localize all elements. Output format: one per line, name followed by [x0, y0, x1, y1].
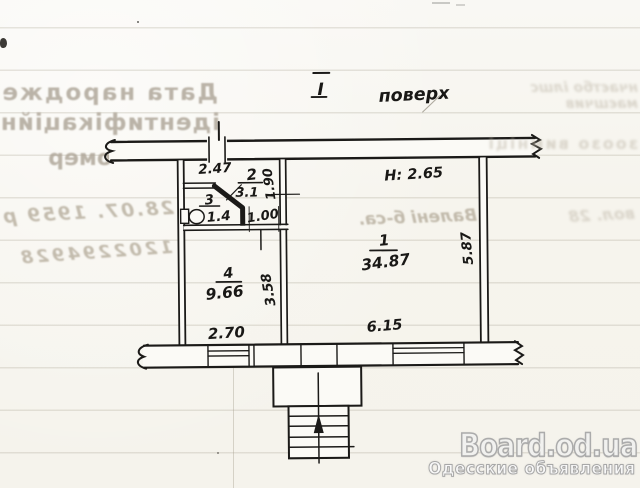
room3-number: 3	[204, 192, 215, 209]
toilet-icon	[181, 209, 205, 224]
watermark-tagline: Одесские объявления	[428, 459, 635, 478]
bleed-scribble-row-1: нчаєтбо ілшс	[520, 80, 638, 96]
scan-speck	[432, 2, 450, 4]
dim-room4-width: 2.70	[207, 323, 245, 343]
scan-speck	[137, 21, 139, 23]
room4-area: 9.66	[205, 282, 245, 304]
room1-area: 34.87	[360, 250, 411, 274]
scan-speck	[0, 38, 7, 48]
bleed-scribble-row-2: маєшчив	[548, 96, 638, 112]
room4-number: 4	[222, 265, 235, 282]
room1-number: 1	[378, 231, 390, 250]
dim-top-width: 2.47	[198, 160, 233, 178]
ceiling-height-note: H: 2.65	[384, 165, 444, 185]
scanned-floor-plan-page: Дата народжен ідентифікаційн омер 28.07.…	[0, 0, 640, 488]
room2-number: 2	[245, 165, 257, 184]
room3-area: 1.4	[206, 208, 231, 226]
scan-speck	[456, 4, 465, 6]
dim-hall-depth: 1.90	[260, 167, 279, 201]
floor-plan-drawing: I поверх	[0, 0, 640, 488]
dim-hall-width: 1.00	[246, 207, 280, 227]
dim-room1-depth: 5.87	[458, 230, 477, 265]
bottom-wall	[138, 341, 523, 369]
porch	[273, 367, 361, 407]
plan-title: I поверх	[317, 79, 450, 108]
bleed-mid-row: зоозо вимніці	[428, 134, 638, 153]
right-wall	[479, 157, 488, 342]
room2-area: 3.1	[235, 186, 258, 201]
scan-speck	[217, 452, 219, 454]
dim-room1-width: 6.15	[366, 317, 403, 336]
dim-room4-depth: 3.58	[258, 272, 279, 308]
title-word: поверх	[378, 84, 450, 107]
